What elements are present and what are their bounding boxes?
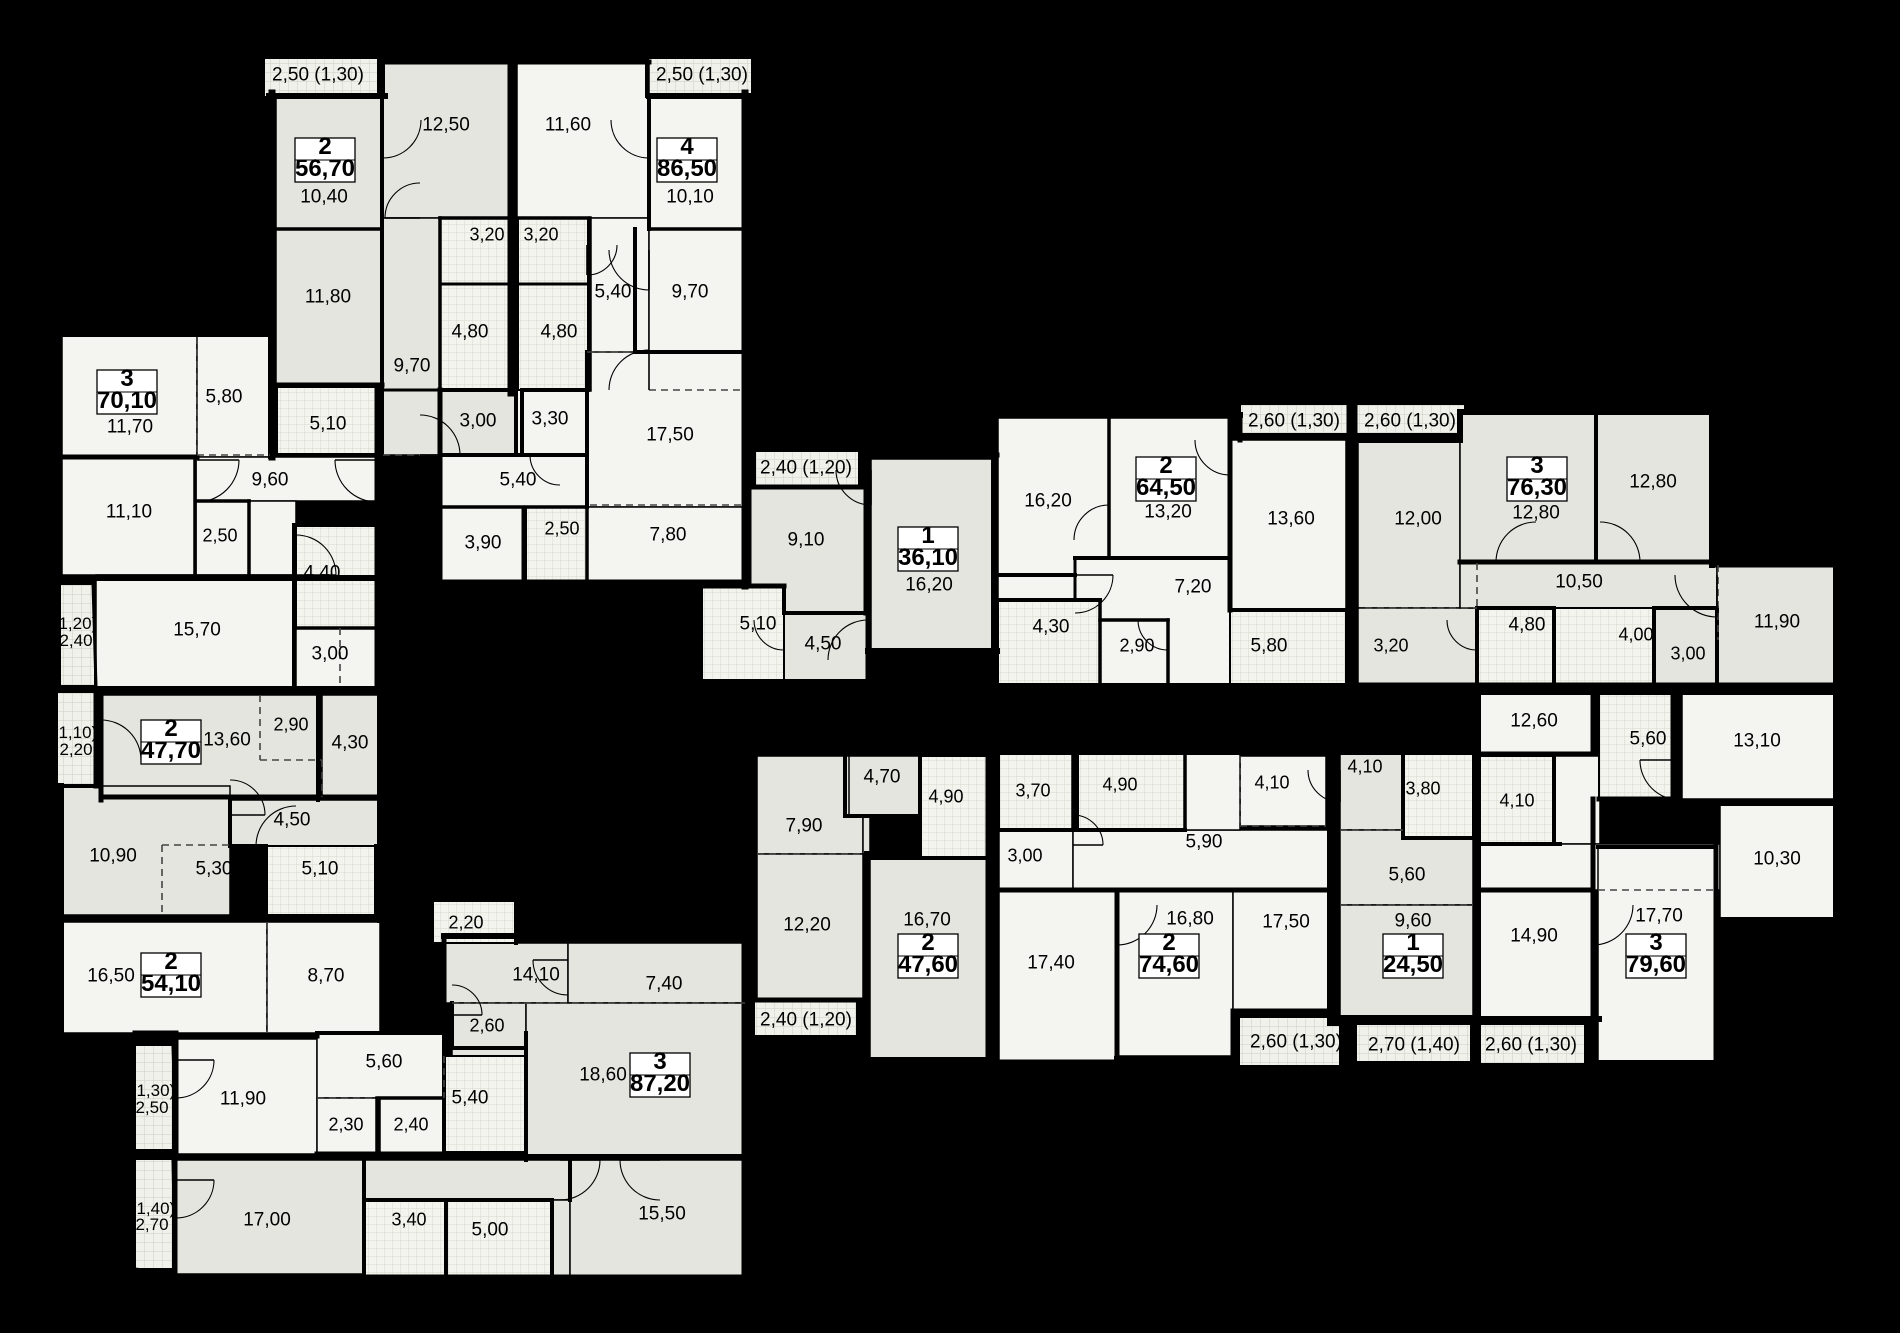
svg-text:5,60: 5,60: [1389, 865, 1426, 886]
svg-text:18,60: 18,60: [579, 1065, 627, 1086]
svg-text:3,80: 3,80: [1405, 778, 1440, 798]
svg-text:15,70: 15,70: [173, 620, 221, 641]
svg-text:14,90: 14,90: [1510, 926, 1558, 947]
svg-text:9,70: 9,70: [672, 282, 709, 303]
svg-text:4,30: 4,30: [332, 733, 369, 754]
svg-text:13,60: 13,60: [1267, 509, 1315, 530]
svg-text:9,70: 9,70: [394, 356, 431, 377]
svg-text:2,60: 2,60: [469, 1015, 504, 1035]
svg-text:11,10: 11,10: [106, 502, 152, 523]
svg-text:11,60: 11,60: [545, 115, 591, 136]
svg-text:5,60: 5,60: [366, 1052, 403, 1073]
svg-text:2,90: 2,90: [273, 714, 308, 734]
svg-text:54,10: 54,10: [141, 970, 201, 997]
svg-text:4,50: 4,50: [274, 810, 311, 831]
svg-text:76,30: 76,30: [1507, 474, 1567, 501]
svg-text:7,80: 7,80: [650, 525, 687, 546]
svg-text:16,70: 16,70: [903, 910, 951, 931]
svg-text:3,20: 3,20: [469, 224, 504, 244]
svg-text:74,60: 74,60: [1139, 951, 1199, 978]
svg-text:4,80: 4,80: [1509, 615, 1546, 636]
svg-text:86,50: 86,50: [657, 155, 717, 182]
svg-text:56,70: 56,70: [295, 155, 355, 182]
svg-text:2,50: 2,50: [202, 525, 237, 545]
svg-text:16,20: 16,20: [905, 575, 953, 596]
svg-text:12,20: 12,20: [783, 915, 831, 936]
svg-text:5,40: 5,40: [500, 470, 537, 491]
svg-text:2,50 (1,30): 2,50 (1,30): [656, 65, 748, 86]
svg-text:2,20: 2,20: [448, 912, 483, 932]
svg-text:17,40: 17,40: [1027, 953, 1075, 974]
svg-text:17,50: 17,50: [1262, 912, 1310, 933]
svg-text:3,00: 3,00: [460, 411, 497, 432]
svg-text:5,10: 5,10: [740, 614, 777, 635]
svg-text:79,60: 79,60: [1626, 951, 1686, 978]
svg-text:4,90: 4,90: [1102, 774, 1137, 794]
svg-text:5,80: 5,80: [206, 387, 243, 408]
svg-text:4,30: 4,30: [1033, 617, 1070, 638]
svg-text:4,10: 4,10: [1499, 790, 1534, 810]
svg-text:10,50: 10,50: [1555, 572, 1603, 593]
svg-text:16,80: 16,80: [1166, 909, 1214, 930]
svg-text:11,80: 11,80: [305, 287, 351, 308]
svg-text:12,80: 12,80: [1512, 503, 1560, 524]
svg-text:5,30: 5,30: [196, 859, 233, 880]
svg-text:17,00: 17,00: [243, 1210, 291, 1231]
svg-text:7,90: 7,90: [786, 816, 823, 837]
svg-text:47,70: 47,70: [141, 737, 201, 764]
svg-text:14,10: 14,10: [512, 965, 560, 986]
svg-text:2,40 (1,20): 2,40 (1,20): [760, 458, 852, 479]
svg-text:10,10: 10,10: [666, 187, 714, 208]
svg-text:2,30: 2,30: [328, 1114, 363, 1134]
svg-text:9,60: 9,60: [1395, 911, 1432, 932]
svg-text:3,00: 3,00: [312, 644, 349, 665]
svg-text:16,20: 16,20: [1024, 491, 1072, 512]
svg-text:2,60 (1,30): 2,60 (1,30): [1248, 411, 1340, 432]
svg-text:5,60: 5,60: [1630, 729, 1667, 750]
svg-text:64,50: 64,50: [1136, 474, 1196, 501]
svg-text:2,60 (1,30): 2,60 (1,30): [1364, 411, 1456, 432]
svg-text:2,70: 2,70: [135, 1215, 168, 1234]
svg-text:8,70: 8,70: [308, 966, 345, 987]
svg-text:5,40: 5,40: [595, 282, 632, 303]
svg-text:11,90: 11,90: [220, 1089, 266, 1110]
svg-text:5,10: 5,10: [302, 859, 339, 880]
svg-text:4,10: 4,10: [1254, 772, 1289, 792]
svg-text:4,00: 4,00: [1618, 624, 1653, 644]
svg-text:3,00: 3,00: [1670, 643, 1705, 663]
svg-text:17,70: 17,70: [1635, 906, 1683, 927]
svg-text:3,30: 3,30: [532, 409, 569, 430]
svg-text:4,40: 4,40: [304, 563, 341, 584]
svg-text:3,90: 3,90: [465, 533, 502, 554]
svg-text:2,20: 2,20: [59, 740, 92, 759]
svg-text:2,50 (1,30): 2,50 (1,30): [272, 65, 364, 86]
svg-text:2,60 (1,30): 2,60 (1,30): [1485, 1035, 1577, 1056]
svg-text:12,50: 12,50: [422, 115, 470, 136]
svg-text:87,20: 87,20: [630, 1070, 690, 1097]
svg-text:3,40: 3,40: [391, 1209, 426, 1229]
svg-text:3,20: 3,20: [523, 224, 558, 244]
svg-text:4,80: 4,80: [452, 322, 489, 343]
svg-text:7,20: 7,20: [1175, 577, 1212, 598]
svg-text:12,80: 12,80: [1629, 472, 1677, 493]
svg-text:2,40: 2,40: [393, 1114, 428, 1134]
svg-text:2,60 (1,30): 2,60 (1,30): [1250, 1032, 1342, 1053]
svg-text:4,10: 4,10: [1347, 756, 1382, 776]
svg-text:2,50: 2,50: [544, 518, 579, 538]
svg-text:13,20: 13,20: [1144, 502, 1192, 523]
svg-text:2,70 (1,40): 2,70 (1,40): [1368, 1035, 1460, 1056]
svg-text:9,10: 9,10: [788, 530, 825, 551]
svg-text:4,80: 4,80: [541, 322, 578, 343]
svg-text:11,70: 11,70: [107, 417, 153, 438]
svg-text:13,10: 13,10: [1733, 731, 1781, 752]
svg-text:5,90: 5,90: [1186, 832, 1223, 853]
svg-text:4,50: 4,50: [805, 634, 842, 655]
svg-text:4,90: 4,90: [928, 786, 963, 806]
svg-text:15,50: 15,50: [638, 1204, 686, 1225]
svg-text:47,60: 47,60: [898, 951, 958, 978]
svg-text:17,50: 17,50: [646, 425, 694, 446]
svg-text:2,40 (1,20): 2,40 (1,20): [760, 1010, 852, 1031]
svg-text:3,00: 3,00: [1007, 845, 1042, 865]
svg-text:4,70: 4,70: [864, 767, 901, 788]
svg-text:5,40: 5,40: [452, 1088, 489, 1109]
svg-text:10,30: 10,30: [1753, 849, 1801, 870]
svg-text:5,10: 5,10: [310, 414, 347, 435]
svg-text:2,50: 2,50: [135, 1098, 168, 1117]
svg-text:12,60: 12,60: [1510, 711, 1558, 732]
svg-text:2,90: 2,90: [1119, 635, 1154, 655]
svg-text:3,70: 3,70: [1015, 780, 1050, 800]
svg-text:70,10: 70,10: [97, 387, 157, 414]
svg-text:11,90: 11,90: [1754, 612, 1800, 633]
svg-text:16,50: 16,50: [87, 966, 135, 987]
svg-text:10,40: 10,40: [300, 187, 348, 208]
svg-text:10,90: 10,90: [89, 846, 137, 867]
svg-text:13,60: 13,60: [203, 730, 251, 751]
svg-text:5,00: 5,00: [472, 1220, 509, 1241]
svg-text:3,20: 3,20: [1373, 635, 1408, 655]
svg-text:7,40: 7,40: [646, 974, 683, 995]
svg-text:5,80: 5,80: [1251, 636, 1288, 657]
svg-text:9,60: 9,60: [252, 470, 289, 491]
svg-text:36,10: 36,10: [898, 544, 958, 571]
svg-text:2,40: 2,40: [59, 631, 92, 650]
svg-text:24,50: 24,50: [1383, 951, 1443, 978]
svg-text:12,00: 12,00: [1394, 509, 1442, 530]
